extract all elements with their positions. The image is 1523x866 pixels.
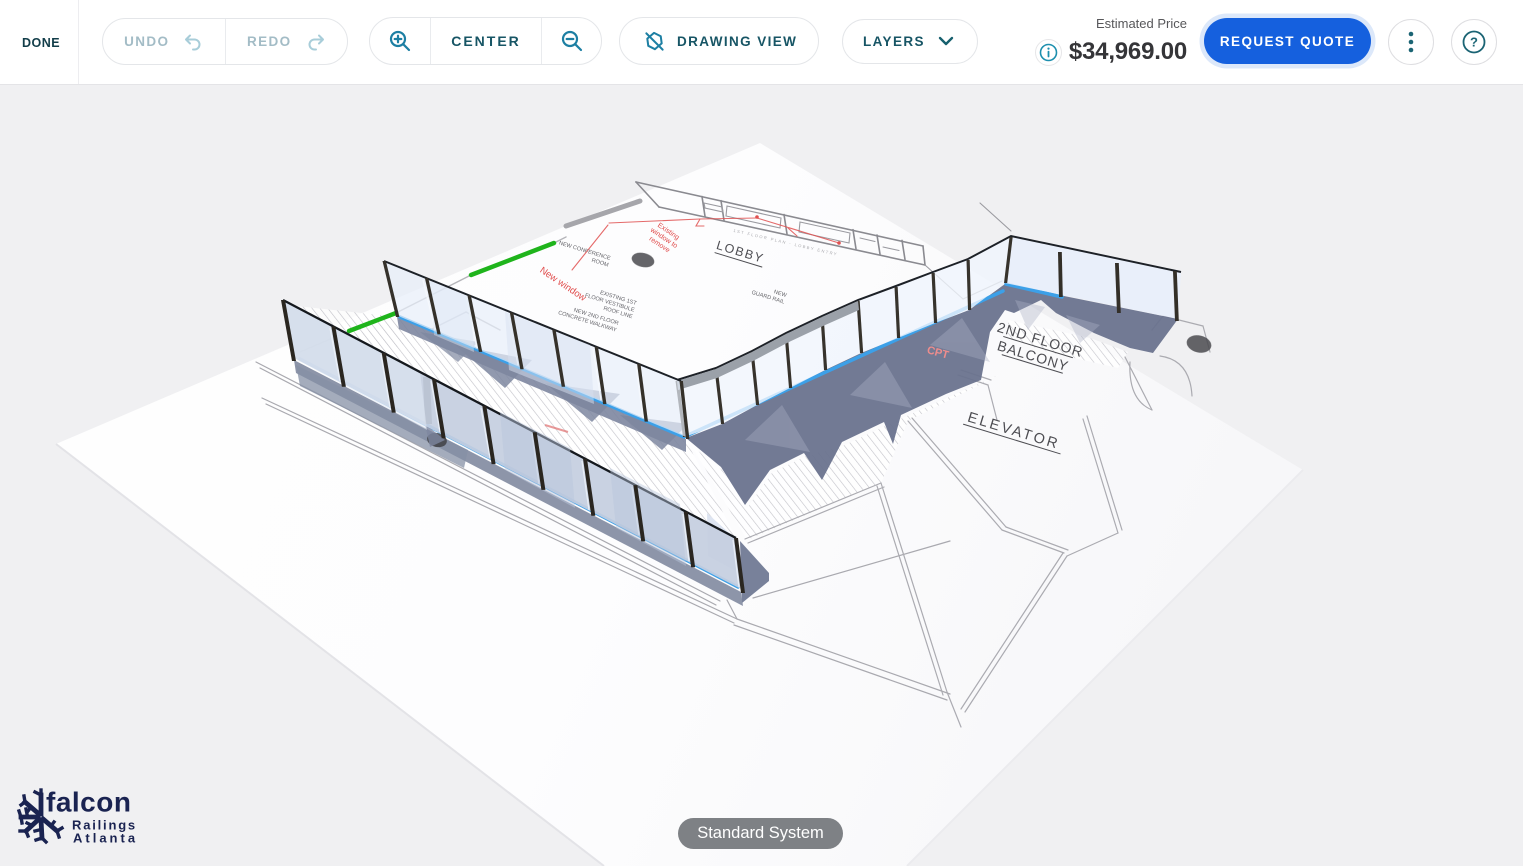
svg-text:Atlanta: Atlanta [73, 831, 138, 846]
svg-text:?: ? [1470, 35, 1478, 50]
svg-text:falcon: falcon [46, 787, 131, 818]
